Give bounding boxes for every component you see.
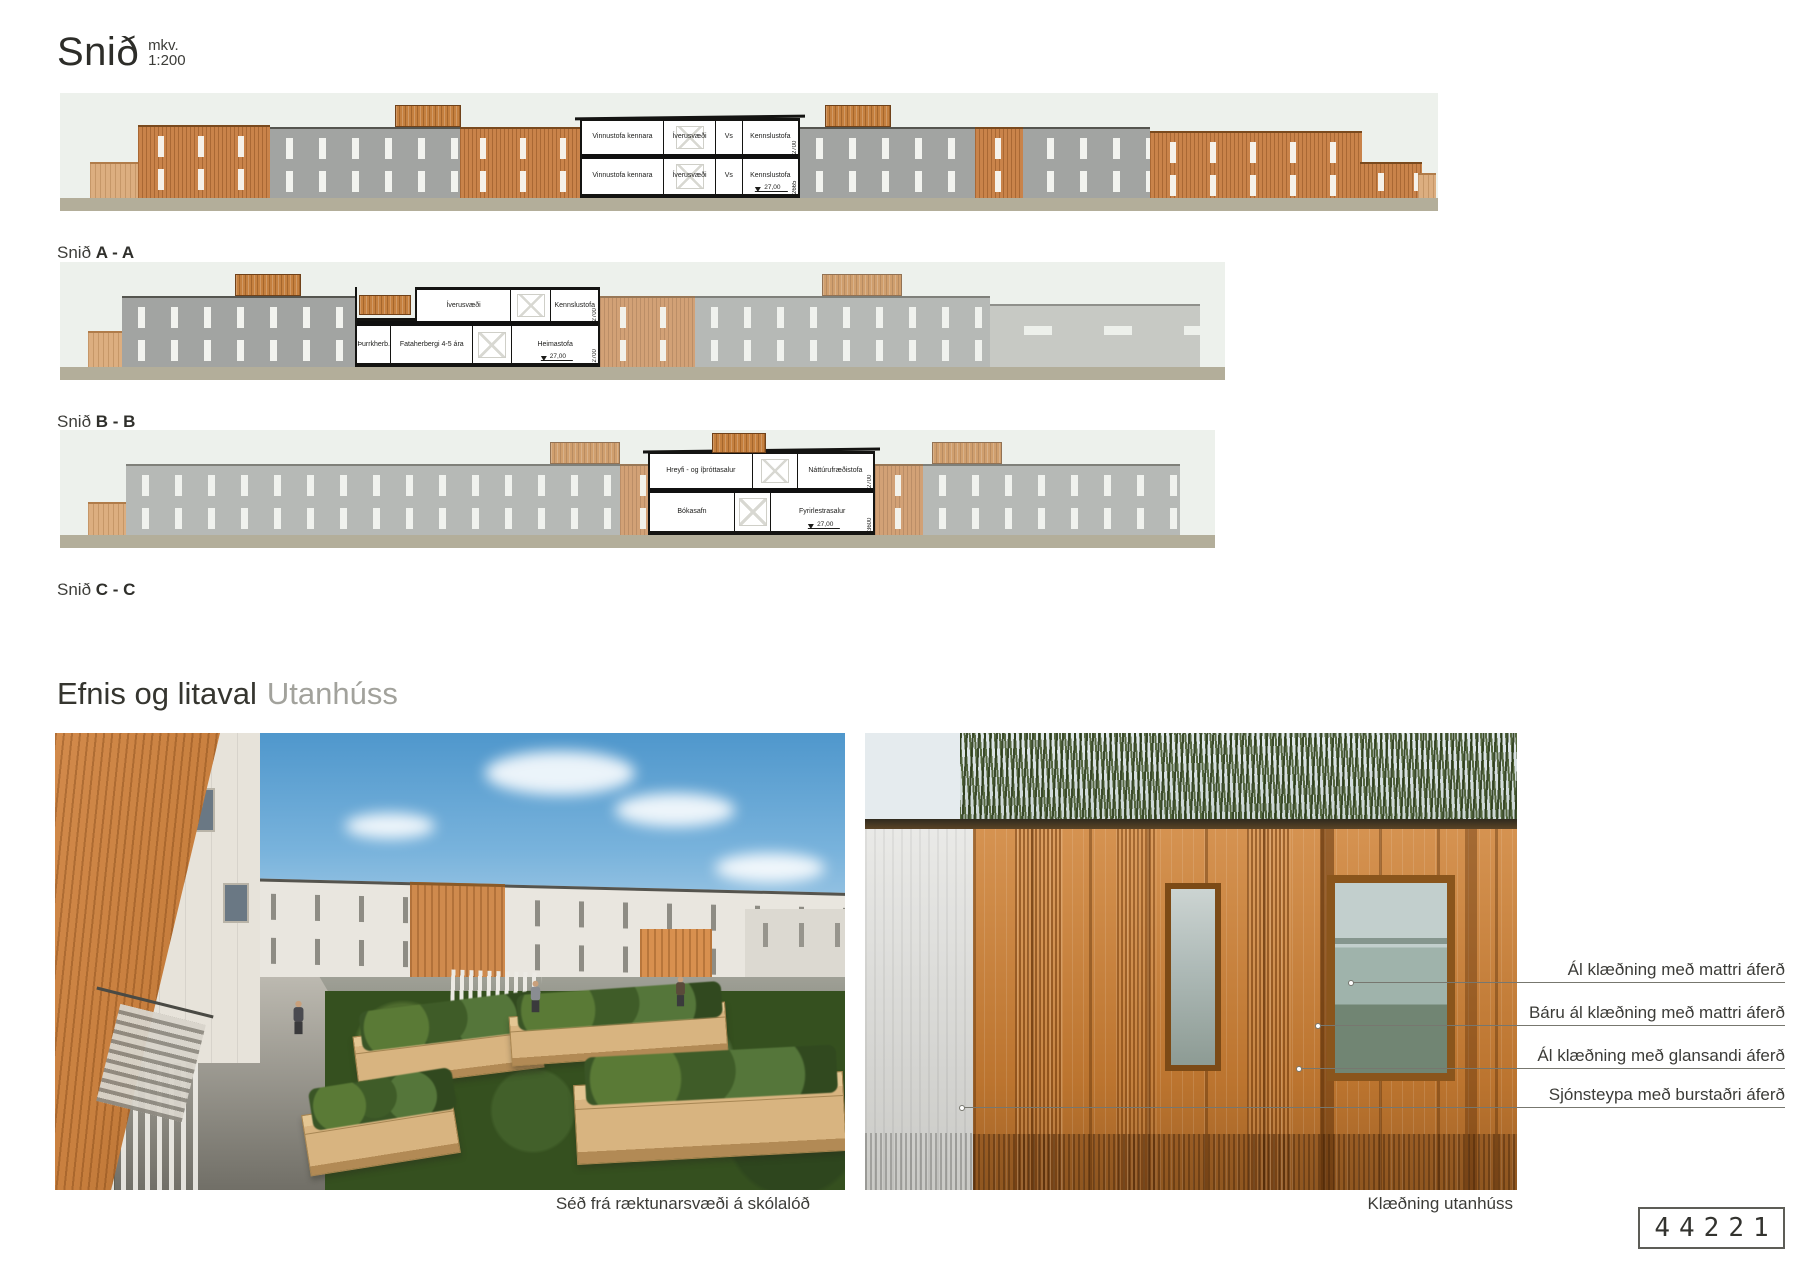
room-label: Kennslustofa xyxy=(552,302,596,310)
leader-line xyxy=(1351,982,1785,983)
leader-line xyxy=(962,1107,1785,1108)
leader-line xyxy=(1299,1068,1785,1069)
roof-grass xyxy=(960,733,1517,825)
door-sketch xyxy=(478,332,506,358)
section-caption-c: Snið C - C xyxy=(57,580,135,600)
materials-heading: Efnis og litavalUtanhúss xyxy=(57,676,398,712)
door-sketch xyxy=(761,459,789,484)
person-figure xyxy=(676,977,685,1007)
person-figure xyxy=(531,981,540,1012)
presentation-board: Snið mkv. 1:200 Vinnustofa kennara Íveru… xyxy=(0,0,1800,1268)
level-marker: 27,00 xyxy=(541,353,573,361)
competition-entry-number: 44221 xyxy=(1638,1207,1785,1249)
person-figure xyxy=(294,1001,304,1034)
schoolyard-rendering-photo xyxy=(55,733,845,1190)
room-label: Kennslustofa xyxy=(748,133,792,141)
dimension-label: 2700 xyxy=(592,290,598,321)
room-label: Bókasafn xyxy=(675,508,708,516)
section-cut-b: Íverusvæði Kennslustofa2700 Þurrkherb. F… xyxy=(355,287,600,367)
scale-note: mkv. 1:200 xyxy=(148,38,186,68)
left-photo-caption: Séð frá ræktunarsvæði á skólalóð xyxy=(55,1194,810,1214)
material-label: Báru ál klæðning með mattri áferð xyxy=(1325,1003,1785,1023)
room-label: Íverusvæði xyxy=(670,133,708,141)
material-label: Ál klæðning með mattri áferð xyxy=(1325,960,1785,980)
room-label: Fataherbergi 4-5 ára xyxy=(398,341,466,349)
room-label: Heimastofa xyxy=(535,341,574,349)
room-label: Íverusvæði xyxy=(670,172,708,180)
dimension-label: 2700 xyxy=(792,121,798,154)
dimension-label: 2665 xyxy=(792,159,798,194)
material-label: Ál klæðning með glansandi áferð xyxy=(1325,1046,1785,1066)
leader-line xyxy=(1318,1025,1785,1026)
dimension-label: 2700 xyxy=(867,454,873,488)
room-label: Náttúrufræðistofa xyxy=(806,467,864,475)
door-sketch xyxy=(739,498,767,525)
dimension-label: 2700 xyxy=(592,326,598,363)
material-label: Sjónsteypa með burstaðri áferð xyxy=(1325,1085,1785,1105)
title-text: Snið xyxy=(57,30,139,75)
room-label: Hreyfi - og íþróttasalur xyxy=(664,467,737,475)
room-label: Fyrirlestrasalur xyxy=(797,508,847,516)
section-cut-c: Hreyfi - og íþróttasalur Náttúrufræðisto… xyxy=(648,451,875,535)
level-marker: 27,00 xyxy=(808,521,840,529)
room-label: Vs xyxy=(723,133,735,141)
room-label: Kennslustofa xyxy=(748,172,792,180)
section-caption-a: Snið A - A xyxy=(57,243,134,263)
page-title: Snið mkv. 1:200 xyxy=(57,30,186,75)
room-label: Íverusvæði xyxy=(444,302,482,310)
room-label: Vs xyxy=(723,172,735,180)
section-caption-b: Snið B - B xyxy=(57,412,135,432)
room-label: Vinnustofa kennara xyxy=(590,133,654,141)
section-drawing-a: Vinnustofa kennara Íverusvæði Vs Kennslu… xyxy=(60,93,1438,211)
right-photo-caption: Klæðning utanhúss xyxy=(865,1194,1513,1214)
room-label: Vinnustofa kennara xyxy=(590,172,654,180)
room-label: Þurrkherb. xyxy=(357,341,390,349)
section-drawing-b: Íverusvæði Kennslustofa2700 Þurrkherb. F… xyxy=(60,262,1225,380)
section-cut-a: Vinnustofa kennara Íverusvæði Vs Kennslu… xyxy=(580,118,800,198)
section-drawing-c: Hreyfi - og íþróttasalur Náttúrufræðisto… xyxy=(60,430,1215,548)
dimension-label: 3600 xyxy=(867,493,873,531)
door-sketch xyxy=(517,294,545,317)
narrow-window xyxy=(1165,883,1221,1071)
level-marker: 27,00 xyxy=(755,184,787,192)
